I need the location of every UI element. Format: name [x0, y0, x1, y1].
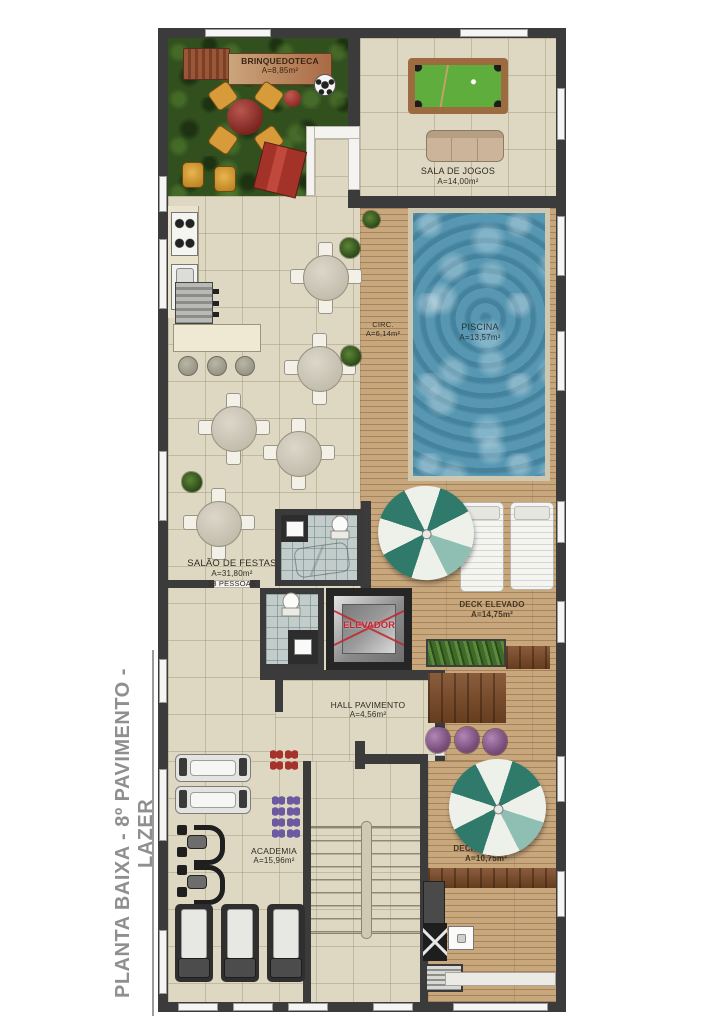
window-left-1: [159, 176, 167, 212]
room-area: A=13,57m²: [428, 333, 532, 343]
window-bottom-1: [178, 1003, 218, 1011]
bench-rack: [179, 790, 187, 808]
room-area: A=14,00m²: [396, 177, 520, 187]
bbq-grill-cabinet: [423, 923, 447, 961]
treadmill-console: [178, 958, 210, 978]
room-name: SALÃO DE FESTAS: [174, 558, 290, 569]
dumbbell: [272, 818, 285, 827]
dumbbell-rack-red: [270, 750, 298, 770]
room-name: ACADEMIA: [230, 846, 318, 856]
table: [297, 346, 343, 392]
bar-stool: [178, 356, 198, 376]
billiard-table: [408, 58, 508, 114]
room-label-hall-pavimento: HALL PAVIMENTO A=4,56m²: [308, 700, 428, 720]
bench-rack: [179, 758, 187, 776]
window-bottom-2: [233, 1003, 273, 1011]
room-label-deck-elevado-1: DECK ELEVADO A=14,75m²: [436, 600, 548, 619]
treadmill: [175, 904, 213, 982]
dumbbell-rack-purple: [272, 796, 300, 838]
bathroom-1: [275, 509, 363, 586]
play-table-set: [203, 83, 287, 153]
plan-title: PLANTA BAIXA - 8º PAVIMENTO - LAZER: [112, 650, 154, 1016]
bench-pad: [190, 760, 236, 776]
toilet: [284, 593, 301, 617]
treadmill-belt: [181, 909, 207, 959]
treadmill: [267, 904, 305, 982]
dining-table-set: [198, 393, 268, 463]
plant: [340, 238, 360, 258]
room-area: A=31,80m²: [174, 569, 290, 579]
machine-seat: [187, 835, 207, 849]
dumbbell: [272, 829, 285, 838]
window-top-1: [205, 29, 271, 37]
room-area: A=10,75m²: [430, 854, 542, 864]
window-left-6: [159, 930, 167, 994]
umbrella-pole: [420, 528, 433, 541]
sofa: [426, 130, 504, 162]
grill-knob: [213, 312, 219, 317]
bathroom-2: [260, 588, 324, 670]
bench-pad: [190, 792, 236, 808]
toilet-tank: [282, 608, 301, 617]
lounger-pillow: [514, 506, 550, 520]
sun-lounger: [510, 502, 554, 590]
window-right-2: [557, 216, 565, 276]
room-name: SALA DE JOGOS: [396, 166, 520, 177]
kid-chair: [182, 162, 204, 188]
machine-weight: [177, 825, 187, 835]
wall-hall-left-stub: [275, 680, 283, 712]
room-name: CIRC.: [358, 320, 408, 329]
deck-edge-bench: [445, 972, 556, 986]
planter-box: [426, 639, 506, 667]
dark-wood-strip: [428, 868, 556, 888]
play-bench: [183, 48, 230, 80]
room-label-salao-de-festas: SALÃO DE FESTAS A=31,80m² 18 PESSOAS: [174, 558, 290, 588]
dark-wood-panel: [506, 646, 550, 669]
toilet: [333, 516, 350, 540]
machine-seat: [187, 875, 207, 889]
bar-stool: [235, 356, 255, 376]
table: [211, 406, 257, 452]
machine-weight: [177, 887, 187, 897]
dumbbell: [270, 750, 283, 759]
room-area: A=6,14m²: [358, 329, 408, 338]
table: [276, 431, 322, 477]
dumbbell: [272, 796, 285, 805]
dark-wood-panel: [428, 673, 506, 723]
room-name: BRINQUEDOTECA: [229, 56, 331, 66]
wall-stair-stub-h: [365, 754, 428, 764]
stair-handrail: [361, 821, 372, 939]
room-name: DECK ELEVADO: [436, 600, 548, 610]
window-right-3: [557, 331, 565, 391]
dining-table-set: [284, 333, 354, 403]
window-left-2: [159, 239, 167, 309]
window-right-6: [557, 756, 565, 802]
kid-chair: [214, 166, 236, 192]
window-right-4: [557, 501, 565, 543]
wall-stair-stub-v: [355, 741, 365, 769]
elevator: ELEVADOR: [326, 588, 412, 670]
bathroom-sink-counter: [281, 515, 308, 542]
umbrella-pole: [492, 802, 505, 815]
sink-drain: [457, 934, 466, 943]
gym-machine: [175, 823, 227, 859]
wall-under-jogos: [348, 196, 566, 208]
bench-rack: [239, 758, 247, 776]
dumbbell: [272, 807, 285, 816]
sink-icon: [294, 639, 312, 655]
table: [196, 501, 242, 547]
room-label-academia: ACADEMIA A=15,96m²: [230, 846, 318, 866]
bathroom-sink-counter: [288, 630, 318, 664]
dining-table-set: [263, 418, 333, 488]
floor-notch: [315, 139, 348, 196]
floor-plan-canvas: PLANTA BAIXA - 8º PAVIMENTO - LAZER: [0, 0, 724, 1024]
wall-hall-top: [260, 670, 445, 680]
machine-weight: [177, 865, 187, 875]
soccer-ball: [314, 74, 336, 96]
piscina-pool: [408, 208, 550, 481]
dining-table-set: [183, 488, 253, 558]
window-right-1: [557, 88, 565, 140]
dumbbell: [287, 818, 300, 827]
window-bottom-3: [288, 1003, 328, 1011]
treadmill: [221, 904, 259, 982]
window-bottom-4: [373, 1003, 413, 1011]
room-label-piscina: PISCINA A=13,57m²: [428, 322, 532, 342]
dumbbell: [287, 807, 300, 816]
floor-plan: BRINQUEDOTECA A=8,85m² SALA DE JOGOS A=1…: [158, 28, 562, 1010]
stove: [171, 212, 198, 256]
bbq-wall: [423, 881, 445, 925]
title-underline: [152, 650, 154, 1016]
room-label-sala-de-jogos: SALA DE JOGOS A=14,00m²: [396, 166, 520, 186]
weight-bench: [175, 754, 251, 782]
window-left-4: [159, 659, 167, 703]
plant: [341, 346, 361, 366]
weight-bench: [175, 786, 251, 814]
grill-counter: [175, 282, 213, 324]
red-ball: [284, 90, 301, 107]
window-left-5: [159, 769, 167, 841]
room-area: A=14,75m²: [436, 610, 548, 620]
treadmill-console: [224, 958, 256, 978]
wall-notch-side: [306, 126, 315, 196]
bench-rack: [239, 790, 247, 808]
treadmill-belt: [273, 909, 299, 959]
treadmill-console: [270, 958, 302, 978]
room-label-circ: CIRC. A=6,14m²: [358, 320, 408, 338]
grill-knob: [213, 289, 219, 294]
gym-machine: [175, 863, 227, 899]
window-right-7: [557, 871, 565, 917]
room-area: A=15,96m²: [230, 856, 318, 866]
window-right-5: [557, 601, 565, 643]
table: [303, 255, 349, 301]
window-left-3: [159, 451, 167, 521]
dumbbell: [285, 750, 298, 759]
window-bottom-5: [453, 1003, 548, 1011]
dumbbell: [285, 761, 298, 770]
grill-knob: [213, 301, 219, 306]
room-name: HALL PAVIMENTO: [308, 700, 428, 710]
bath-sketch: [293, 541, 351, 578]
bbq-sink: [448, 926, 474, 950]
treadmill-belt: [227, 909, 253, 959]
machine-weight: [177, 847, 187, 857]
dumbbell: [270, 761, 283, 770]
window-top-2: [460, 29, 528, 37]
bar-counter: [173, 324, 261, 352]
toilet-tank: [331, 531, 350, 540]
room-capacity: 18 PESSOAS: [174, 579, 290, 588]
room-area: A=4,56m²: [308, 710, 428, 720]
dumbbell: [287, 829, 300, 838]
door-jogos: [348, 134, 360, 190]
elevator-label: ELEVADOR: [334, 620, 404, 631]
sink-icon: [286, 521, 304, 537]
bar-stool: [207, 356, 227, 376]
plant: [182, 472, 202, 492]
room-area: A=8,85m²: [229, 66, 331, 76]
room-name: PISCINA: [428, 322, 532, 333]
play-table: [227, 99, 263, 135]
dumbbell: [287, 796, 300, 805]
plant: [363, 211, 380, 228]
